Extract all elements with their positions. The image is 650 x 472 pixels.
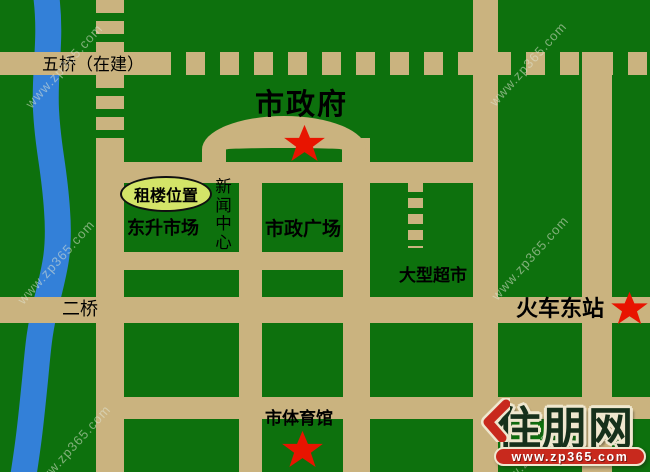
road-bridge5-east-dashed <box>152 52 650 75</box>
logo-url-banner: www.zp365.com <box>494 447 646 466</box>
road-h-square-south <box>96 252 369 270</box>
logo-red-accent-icon <box>478 398 510 442</box>
map-canvas: 租楼位置 五桥（在建） 市政府 东升市场 新闻中心 市政广场 大型超市 二桥 火… <box>0 0 650 472</box>
dongsheng-market-label: 东升市场 <box>127 219 199 238</box>
road-supermarket-dashed <box>408 182 423 248</box>
road-v-news-center <box>239 162 262 472</box>
gymnasium-star-icon <box>280 430 325 468</box>
zp365-logo: 住朋网 www.zp365.com <box>476 388 650 472</box>
city-hall-label: 市政府 <box>255 90 348 120</box>
bridge2-label: 二桥 <box>62 300 98 319</box>
road-v-square-east <box>343 138 370 472</box>
news-center-label: 新闻中心 <box>214 178 233 252</box>
city-gymnasium-label: 市体育馆 <box>265 410 333 428</box>
train-station-star-icon <box>609 291 650 325</box>
supermarket-label: 大型超市 <box>399 267 467 285</box>
rental-location-label: 租楼位置 <box>134 182 198 206</box>
road-v-west-dashed-mid <box>96 75 124 138</box>
city-hall-star-icon <box>282 124 327 162</box>
rental-location-highlight: 租楼位置 <box>120 176 212 212</box>
civic-square-label: 市政广场 <box>265 220 341 240</box>
train-east-station-label: 火车东站 <box>516 297 604 320</box>
